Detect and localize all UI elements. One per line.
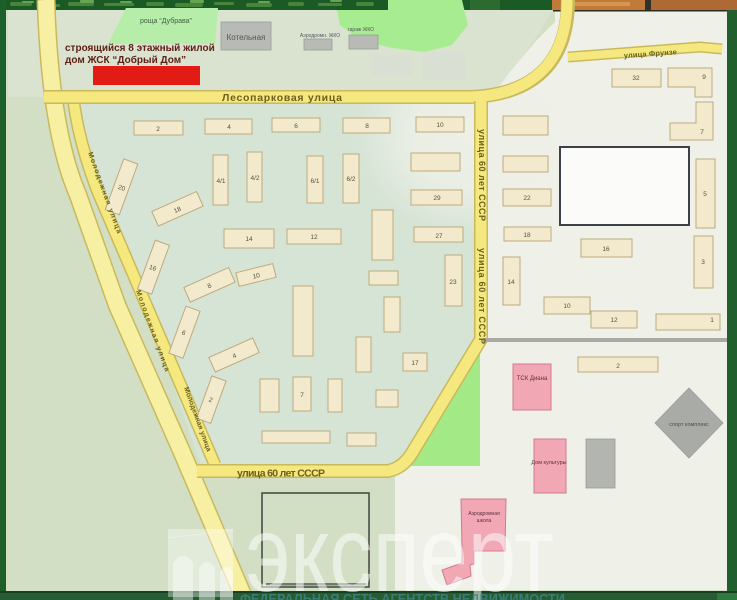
svg-text:Лесопарковая улица: Лесопарковая улица — [222, 92, 342, 104]
svg-text:23: 23 — [449, 279, 457, 286]
svg-text:гараж ЖКО: гараж ЖКО — [348, 27, 374, 33]
svg-text:7: 7 — [300, 392, 304, 399]
svg-text:спорт комплекс: спорт комплекс — [669, 422, 709, 428]
svg-text:улица 60 лет СССР: улица 60 лет СССР — [477, 248, 487, 344]
svg-text:2: 2 — [156, 126, 160, 133]
svg-text:12: 12 — [610, 317, 618, 324]
svg-text:ФЕДЕРАЛЬНАЯ СЕТЬ АГЕНТСТВ НЕДВ: ФЕДЕРАЛЬНАЯ СЕТЬ АГЕНТСТВ НЕДВИЖИМОСТИ — [240, 591, 565, 600]
svg-text:32: 32 — [632, 75, 640, 82]
svg-text:6: 6 — [294, 123, 298, 130]
svg-text:4: 4 — [227, 124, 231, 131]
svg-text:2: 2 — [616, 363, 620, 370]
svg-text:роща “Дубрава”: роща “Дубрава” — [140, 17, 193, 25]
svg-text:14: 14 — [245, 236, 253, 243]
svg-text:27: 27 — [435, 233, 443, 240]
svg-text:эксперт: эксперт — [246, 493, 554, 600]
svg-text:строящийся 8 этажный жилой: строящийся 8 этажный жилой — [65, 43, 215, 54]
svg-text:17: 17 — [411, 360, 419, 367]
svg-text:9: 9 — [702, 74, 706, 81]
svg-text:3: 3 — [701, 259, 705, 266]
svg-text:7: 7 — [700, 129, 704, 136]
svg-text:4/1: 4/1 — [216, 178, 225, 185]
svg-text:29: 29 — [433, 195, 441, 202]
svg-text:22: 22 — [523, 195, 531, 202]
svg-text:6/1: 6/1 — [310, 178, 319, 185]
svg-text:10: 10 — [563, 303, 571, 310]
svg-text:Дом культуры: Дом культуры — [531, 460, 566, 466]
svg-text:1: 1 — [710, 317, 714, 324]
svg-text:дом ЖСК “Добрый Дом”: дом ЖСК “Добрый Дом” — [65, 54, 186, 66]
svg-text:5: 5 — [703, 191, 707, 198]
svg-text:10: 10 — [436, 122, 444, 129]
svg-text:улица 60 лет СССР: улица 60 лет СССР — [477, 129, 487, 221]
svg-text:ТСК Диана: ТСК Диана — [517, 376, 548, 382]
svg-text:улица 60 лет СССР: улица 60 лет СССР — [237, 468, 325, 480]
svg-text:16: 16 — [602, 246, 610, 253]
svg-text:18: 18 — [523, 232, 531, 239]
svg-text:Котельная: Котельная — [227, 33, 266, 42]
svg-text:8: 8 — [365, 123, 369, 130]
svg-text:12: 12 — [310, 234, 318, 241]
svg-text:4/2: 4/2 — [250, 175, 259, 182]
svg-text:6/2: 6/2 — [346, 176, 355, 183]
svg-text:14: 14 — [507, 279, 515, 286]
svg-text:Аэродромн. ЖКО: Аэродромн. ЖКО — [300, 33, 340, 39]
